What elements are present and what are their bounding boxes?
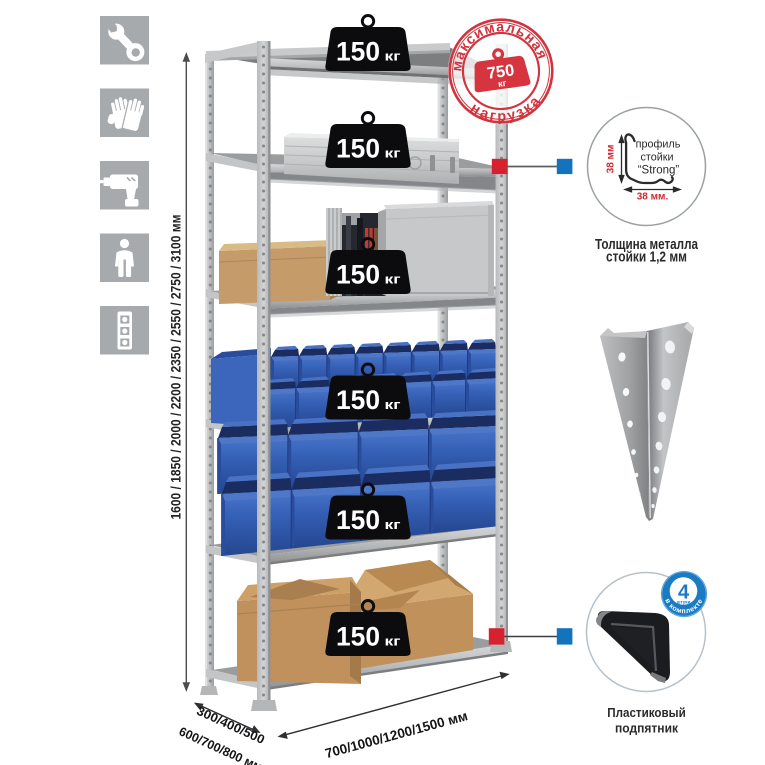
svg-text:150: 150 (336, 134, 380, 164)
svg-text:кг: кг (385, 146, 402, 161)
svg-text:кг: кг (385, 397, 402, 412)
svg-text:Пластиковый: Пластиковый (607, 705, 686, 720)
svg-text:стойки: стойки (640, 152, 673, 164)
svg-text:кг: кг (385, 272, 402, 287)
svg-text:38 мм.: 38 мм. (637, 192, 669, 203)
svg-text:150: 150 (336, 385, 380, 415)
svg-text:подпятник: подпятник (615, 721, 678, 736)
svg-text:150: 150 (336, 260, 380, 290)
svg-text:штуки: штуки (677, 600, 691, 605)
svg-text:150: 150 (336, 622, 380, 652)
svg-text:кг: кг (385, 517, 402, 532)
svg-text:кг: кг (385, 49, 402, 64)
svg-text:“Strong”: “Strong” (638, 165, 680, 177)
svg-text:кг: кг (497, 78, 507, 89)
svg-text:1600 / 1850 / 2000 / 2200 / 23: 1600 / 1850 / 2000 / 2200 / 2350 / 2550 … (169, 214, 184, 519)
svg-text:38 мм: 38 мм (606, 145, 617, 174)
svg-text:150: 150 (336, 37, 380, 67)
svg-text:кг: кг (385, 634, 402, 649)
svg-text:профиль: профиль (636, 139, 681, 151)
svg-text:150: 150 (336, 505, 380, 535)
svg-text:стойки 1,2 мм: стойки 1,2 мм (606, 250, 687, 266)
